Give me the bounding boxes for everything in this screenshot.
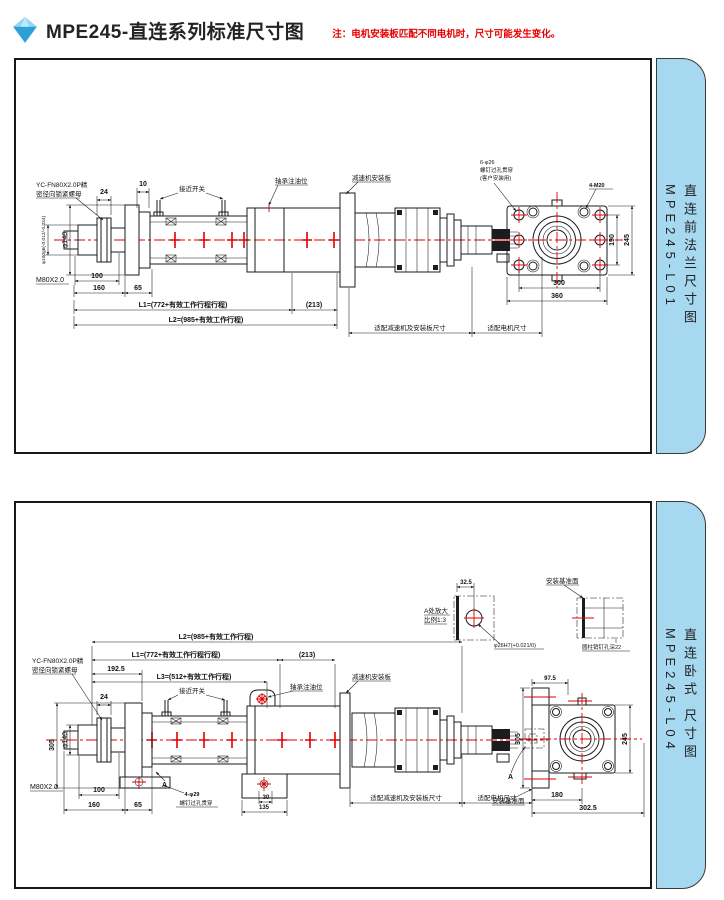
datum-top-label: 安装基准面 (546, 576, 579, 585)
dim-360: 360 (551, 293, 563, 300)
lock-nut-label-2: 密径向锁紧螺母 (36, 189, 82, 198)
reducer-plate-label: 减速机安装板 (352, 672, 392, 681)
fit-reducer-label: 适配减速机及安装板尺寸 (374, 323, 446, 332)
lock-nut-label-1: YC-FN80X2.0P精 (36, 180, 88, 189)
dim-135: 135 (259, 805, 270, 811)
top-dimensions: L2=(985+有效工作行程) L1=(772+有效工作行程行程) (213) … (92, 632, 462, 725)
thread-label: M80X2.0 (36, 277, 64, 284)
drawing-box-l04: L2=(985+有效工作行程) L1=(772+有效工作行程行程) (213) … (14, 501, 652, 889)
side-dimensions: 24 10 φ140 φ100g6(-0.012/-0.034) 100 160… (41, 181, 542, 337)
dim-dia140: φ140 (62, 232, 69, 248)
datum-side-view: 安装基准面 圆柱销钉孔深22 (546, 576, 630, 651)
panel-tab-l01: 直连前法兰尺寸图 MPE245-L01 (656, 58, 706, 454)
fit-motor-label: 适配电机尺寸 (488, 323, 528, 332)
proximity-label: 接近开关 (179, 686, 206, 695)
lock-nut-label-2: 密径向锁紧螺母 (32, 665, 78, 674)
dim-l1: L1=(772+有效工作行程行程) (139, 300, 228, 309)
drawing-box-l01: YC-FN80X2.0P精 密径向锁紧螺母 接近开关 轴承注油位 减速机安装板 … (14, 58, 652, 454)
tab-title-l01: 直连前法兰尺寸图 (680, 184, 699, 328)
callouts: YC-FN80X2.0P精 密径向锁紧螺母 接近开关 轴承注油位 减速机安装板 … (36, 173, 392, 284)
detail-title-2: 比例1:3 (424, 615, 446, 624)
dim-300: 300 (553, 280, 565, 287)
dim-65: 65 (134, 285, 142, 292)
end-dim-245: 245 (622, 733, 629, 745)
dim-100: 100 (93, 787, 105, 794)
mark-a2: A (508, 774, 513, 781)
outer-tube (247, 203, 354, 272)
dim-dia140: φ140 (62, 732, 69, 748)
dim-l2: L2=(985+有效工作行程) (169, 315, 244, 324)
dim-160: 160 (93, 285, 105, 292)
detail-hole-label: φ26H7(+0.021/0) (494, 643, 536, 649)
proximity-switch-posts (154, 200, 228, 216)
reducer-assembly (340, 693, 518, 788)
dim-213: (213) (306, 302, 322, 309)
tab-code-l01: MPE245-L01 (663, 184, 678, 328)
tab-code-l04: MPE245-L04 (663, 628, 678, 763)
feet-holes-label-2: 螺钉过孔贯穿 (179, 799, 213, 807)
panel-tab-l04: 直连卧式 尺寸图 MPE245-L04 (656, 501, 706, 889)
dim-24: 24 (100, 694, 108, 701)
tab-title-l04: 直连卧式 尺寸图 (680, 628, 699, 763)
dim-dia100: φ100g6(-0.012/-0.034) (41, 216, 47, 265)
feet-holes-label-1: 4-φ29 (185, 792, 200, 798)
holes-4xm20-label: 4-M20 (589, 183, 605, 189)
holes-6xd26-label: 6-φ26 (480, 160, 495, 166)
dim-30: 30 (263, 795, 270, 801)
thread-label: M80X2.0 (30, 784, 58, 791)
dim-975: 97.5 (544, 676, 556, 682)
side-dimensions: 24 305 φ140 100 160 65 30 1 (49, 694, 532, 816)
diamond-logo-icon (12, 16, 38, 44)
dim-160: 160 (88, 802, 100, 809)
holes-6xd26-label3: (客户安装用) (480, 174, 511, 182)
dim-l3: L3=(512+有效工作行程) (157, 672, 232, 681)
dim-l1: L1=(772+有效工作行程行程) (132, 650, 221, 659)
page-header: MPE245-直连系列标准尺寸图 注：电机安装板匹配不同电机时，尺寸可能发生变化… (0, 0, 724, 44)
end-dim-305: 305 (515, 733, 522, 745)
dim-180: 180 (551, 792, 563, 799)
reducer-plate-label: 减速机安装板 (352, 173, 392, 182)
dim-305: 305 (49, 739, 56, 751)
panel-front-flange: YC-FN80X2.0P精 密径向锁紧螺母 接近开关 轴承注油位 减速机安装板 … (14, 58, 724, 454)
front-flange-drawing: YC-FN80X2.0P精 密径向锁紧螺母 接近开关 轴承注油位 减速机安装板 … (16, 60, 650, 450)
motor-connectors (492, 229, 518, 262)
dim-245: 245 (624, 234, 631, 246)
dim-213: (213) (299, 652, 315, 659)
proximity-label: 接近开关 (179, 184, 206, 193)
dim-100: 100 (91, 273, 103, 280)
dim-65: 65 (134, 802, 142, 809)
page-title: MPE245-直连系列标准尺寸图 (46, 17, 304, 44)
fit-reducer-label: 适配减速机及安装板尺寸 (370, 793, 442, 802)
center-line (46, 732, 548, 748)
oil-port-label: 轴承注油位 (275, 176, 308, 185)
proximity-switch-posts (162, 700, 230, 716)
oil-boss (250, 690, 275, 706)
pin-hole-note: 圆柱销钉孔深22 (582, 643, 621, 651)
dim-24: 24 (100, 189, 108, 196)
dim-1925: 192.5 (107, 666, 125, 673)
dim-190: 190 (609, 234, 616, 246)
lock-nut-label-1: YC-FN80X2.0P精 (32, 656, 84, 665)
detail-title-1: A处放大 (424, 606, 448, 615)
detail-a-view: 32.5 A处放大 比例1:3 φ26H7(+0.021/0) (424, 580, 544, 649)
dim-10: 10 (139, 181, 147, 188)
outer-tube (242, 690, 340, 798)
dim-325: 32.5 (460, 580, 472, 586)
panel-horizontal-mount: L2=(985+有效工作行程) L1=(772+有效工作行程行程) (213) … (14, 501, 724, 889)
horizontal-mount-drawing: L2=(985+有效工作行程) L1=(772+有效工作行程行程) (213) … (16, 503, 650, 885)
oil-port-label: 轴承注油位 (290, 682, 323, 691)
dim-3025: 302.5 (579, 805, 597, 812)
dim-l2: L2=(985+有效工作行程) (179, 632, 254, 641)
holes-6xd26-label2: 螺钉过孔贯穿 (480, 166, 514, 174)
header-note: 注：电机安装板匹配不同电机时，尺寸可能发生变化。 (332, 26, 560, 40)
